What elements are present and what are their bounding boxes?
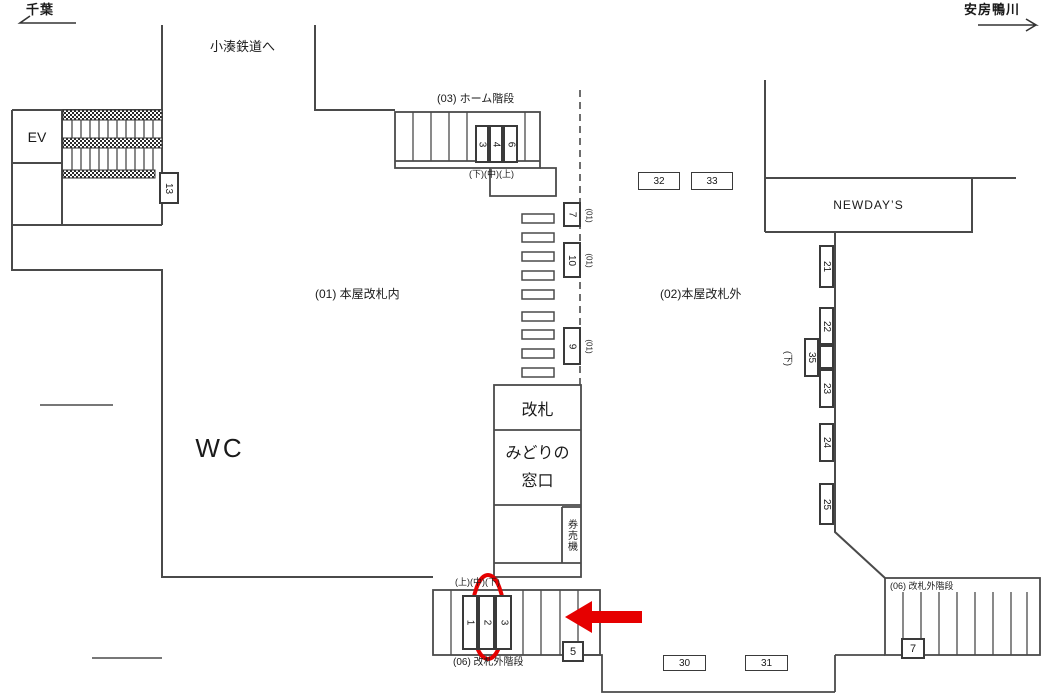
platform-stairs-sublabel: (下)(中)(上) (469, 169, 514, 179)
east-stairs-label: (06) 改札外階段 (890, 581, 954, 591)
ad-box-35: 35 (804, 338, 819, 377)
station-floor-map: 千葉 安房鴨川 小湊鉄道へ (01) 本屋改札内 (02)本屋改札外 EV WC… (0, 0, 1062, 699)
ad-box-2b: 3 (495, 595, 512, 650)
ad-box-13-num: 13 (164, 182, 175, 193)
kominato-railway-label: 小湊鉄道へ (210, 40, 275, 55)
ad-box-2: 2 (478, 595, 495, 650)
ad-box-4: 4 (489, 125, 503, 163)
wall-strip-tag: (下) (781, 344, 795, 372)
walls-right (765, 80, 1016, 578)
ad-box-33: 33 (691, 172, 733, 190)
ad-box-5: 5 (562, 641, 584, 662)
elevator-room: EV (12, 110, 62, 163)
wc-room: WC (175, 430, 265, 466)
ad-box-7-east: 7 (901, 638, 925, 659)
zone-inside-gates-label: (01) 本屋改札内 (315, 288, 400, 302)
direction-arrow-right (978, 19, 1036, 31)
ad-box-10-gate: 10 (563, 242, 581, 278)
south-stairs-sublabel: (上)(中)(下) (455, 577, 500, 587)
ad-box-10-num: 10 (567, 254, 578, 265)
ad-box-4-num: 4 (491, 141, 502, 147)
ad-box-2b-num: 3 (498, 620, 509, 626)
ad-box-6-num: 6 (505, 141, 516, 147)
ad-box-32: 32 (638, 172, 680, 190)
ad-box-25-num: 25 (821, 498, 832, 509)
northwest-stairs (63, 110, 162, 178)
midori-label-line2: 窓口 (521, 468, 553, 495)
wall-blank-box (819, 345, 834, 369)
midori-label-line1: みどりの (505, 440, 569, 467)
midori-no-madoguchi-office: みどりの 窓口 (494, 430, 581, 505)
ad-box-21-num: 21 (821, 261, 832, 272)
ticket-gate-office: 改札 (494, 385, 581, 430)
ad-box-22: 22 (819, 307, 834, 345)
south-stairs-label: (06) 改札外階段 (453, 657, 524, 669)
ad-box-31: 31 (745, 655, 788, 671)
direction-label-chiba: 千葉 (26, 3, 54, 18)
ad-box-35-num: 35 (806, 352, 817, 363)
ad-box-1-num: 1 (465, 620, 476, 626)
ad-box-3: 3 (475, 125, 489, 163)
ad-box-30: 30 (663, 655, 706, 671)
ad-box-21: 21 (819, 245, 834, 288)
ad-box-13: 13 (159, 172, 179, 204)
floorplan-linework (0, 0, 1062, 699)
newdays-shop: NEWDAY’S (765, 178, 972, 232)
ad-box-3-num: 3 (477, 141, 488, 147)
ad-box-7-num: 7 (567, 212, 578, 218)
ad-box-7-tag: (01) (582, 200, 596, 230)
ticket-gate-slots (522, 214, 554, 377)
pointer-arrow (565, 601, 642, 633)
ad-box-9-tag: (01) (582, 331, 596, 361)
ad-box-2-num: 2 (481, 620, 492, 626)
ticket-vending-machine: 券売機 (561, 507, 581, 563)
wall-ticks (40, 405, 162, 658)
ad-box-24-num: 24 (821, 437, 832, 448)
ad-box-1: 1 (462, 595, 478, 650)
ad-box-7-gate: 7 (563, 202, 581, 227)
ad-box-9-gate: 9 (563, 327, 581, 365)
direction-label-awakamogawa: 安房鴨川 (964, 3, 1020, 18)
ad-box-24: 24 (819, 423, 834, 462)
ad-box-10-tag: (01) (582, 245, 596, 275)
zone-outside-gates-label: (02)本屋改札外 (660, 288, 741, 302)
ad-box-6: 6 (503, 125, 518, 163)
ad-box-22-num: 22 (821, 320, 832, 331)
ad-box-9-num: 9 (567, 343, 578, 349)
ad-box-23-num: 23 (821, 383, 832, 394)
platform-stairs-label: (03) ホーム階段 (437, 93, 514, 106)
ad-box-25: 25 (819, 483, 834, 525)
ad-box-23: 23 (819, 369, 834, 408)
